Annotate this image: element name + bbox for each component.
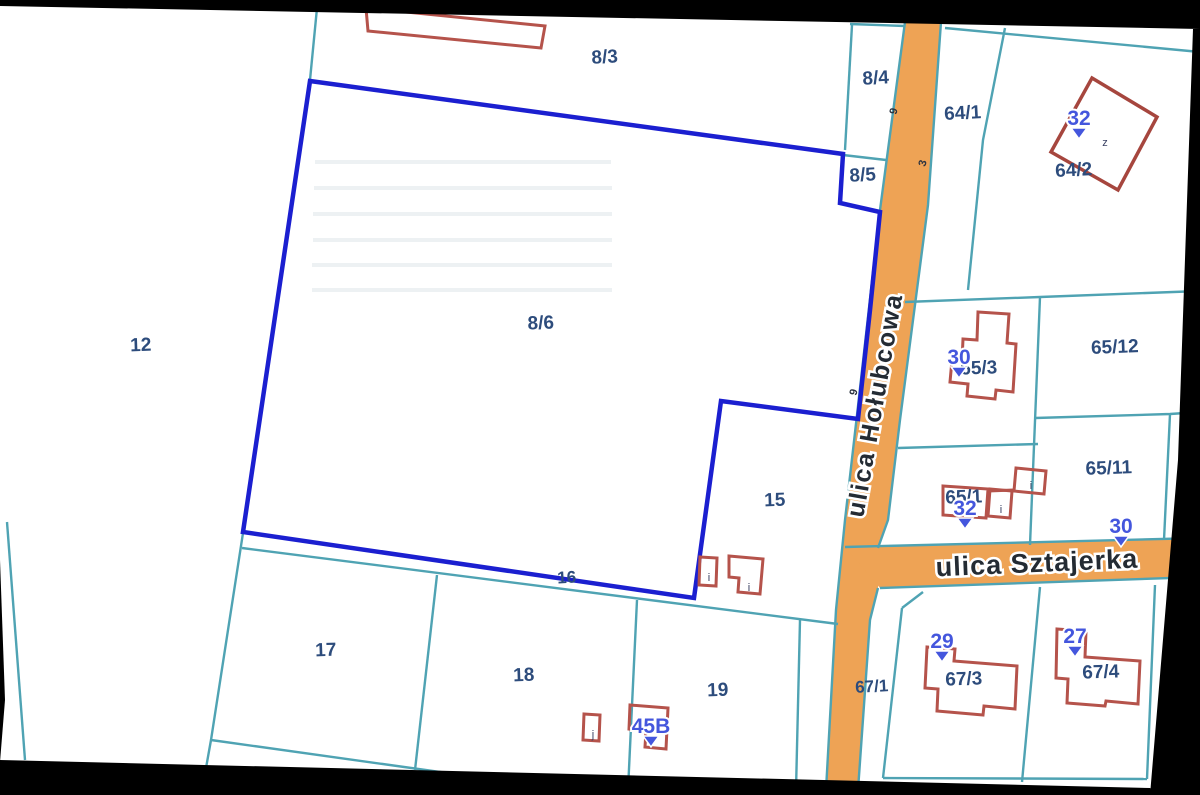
cadastral-map: ulica Hołubcowa ulica Sztajerka 12 8/3 8… bbox=[0, 0, 1200, 795]
building-letter-i-1: i bbox=[1030, 480, 1032, 492]
marker-45B-19: 45B bbox=[632, 715, 671, 738]
parcel-label-67-3: 67/3 bbox=[945, 668, 983, 690]
building-letter-i-4: i bbox=[748, 582, 750, 594]
parcel-label-8-5: 8/5 bbox=[849, 164, 877, 186]
parcel-label-12: 12 bbox=[130, 335, 152, 357]
marker-30-65-3: 30 bbox=[947, 346, 970, 369]
parcel-label-67-1: 67/1 bbox=[855, 676, 889, 697]
building-letter-i-3: i bbox=[708, 572, 710, 584]
parcel-label-64-2: 64/2 bbox=[1055, 159, 1093, 182]
parcel-label-8-4: 8/4 bbox=[862, 67, 890, 89]
building-parcel-65-1-c-tail bbox=[988, 490, 1014, 491]
building-letter-j-1: j bbox=[591, 729, 594, 741]
parcel-label-18: 18 bbox=[513, 665, 535, 687]
marker-29-67-3: 29 bbox=[930, 630, 953, 653]
building-letter-i-2: i bbox=[1000, 504, 1002, 516]
marker-32-64-2: 32 bbox=[1067, 107, 1090, 130]
parcel-label-16: 16 bbox=[557, 568, 577, 588]
parcel-label-15: 15 bbox=[764, 490, 786, 512]
marker-27-67-4: 27 bbox=[1063, 625, 1086, 648]
parcel-label-19: 19 bbox=[707, 680, 729, 702]
marker-32-65-1: 32 bbox=[953, 497, 976, 520]
parcel-label-65-12: 65/12 bbox=[1091, 336, 1139, 359]
building-letter-z: z bbox=[1102, 137, 1108, 149]
parcel-label-64-1: 64/1 bbox=[944, 102, 982, 125]
parcel-label-8-3: 8/3 bbox=[591, 46, 618, 68]
parcel-label-67-4: 67/4 bbox=[1082, 661, 1120, 683]
parcel-label-65-11: 65/11 bbox=[1085, 457, 1133, 480]
map-canvas[interactable]: ulica Hołubcowa ulica Sztajerka 12 8/3 8… bbox=[0, 0, 1200, 795]
parcel-label-8-6: 8/6 bbox=[527, 313, 554, 335]
parcel-label-17: 17 bbox=[315, 640, 337, 662]
marker-30-sztajerka: 30 bbox=[1109, 515, 1132, 538]
